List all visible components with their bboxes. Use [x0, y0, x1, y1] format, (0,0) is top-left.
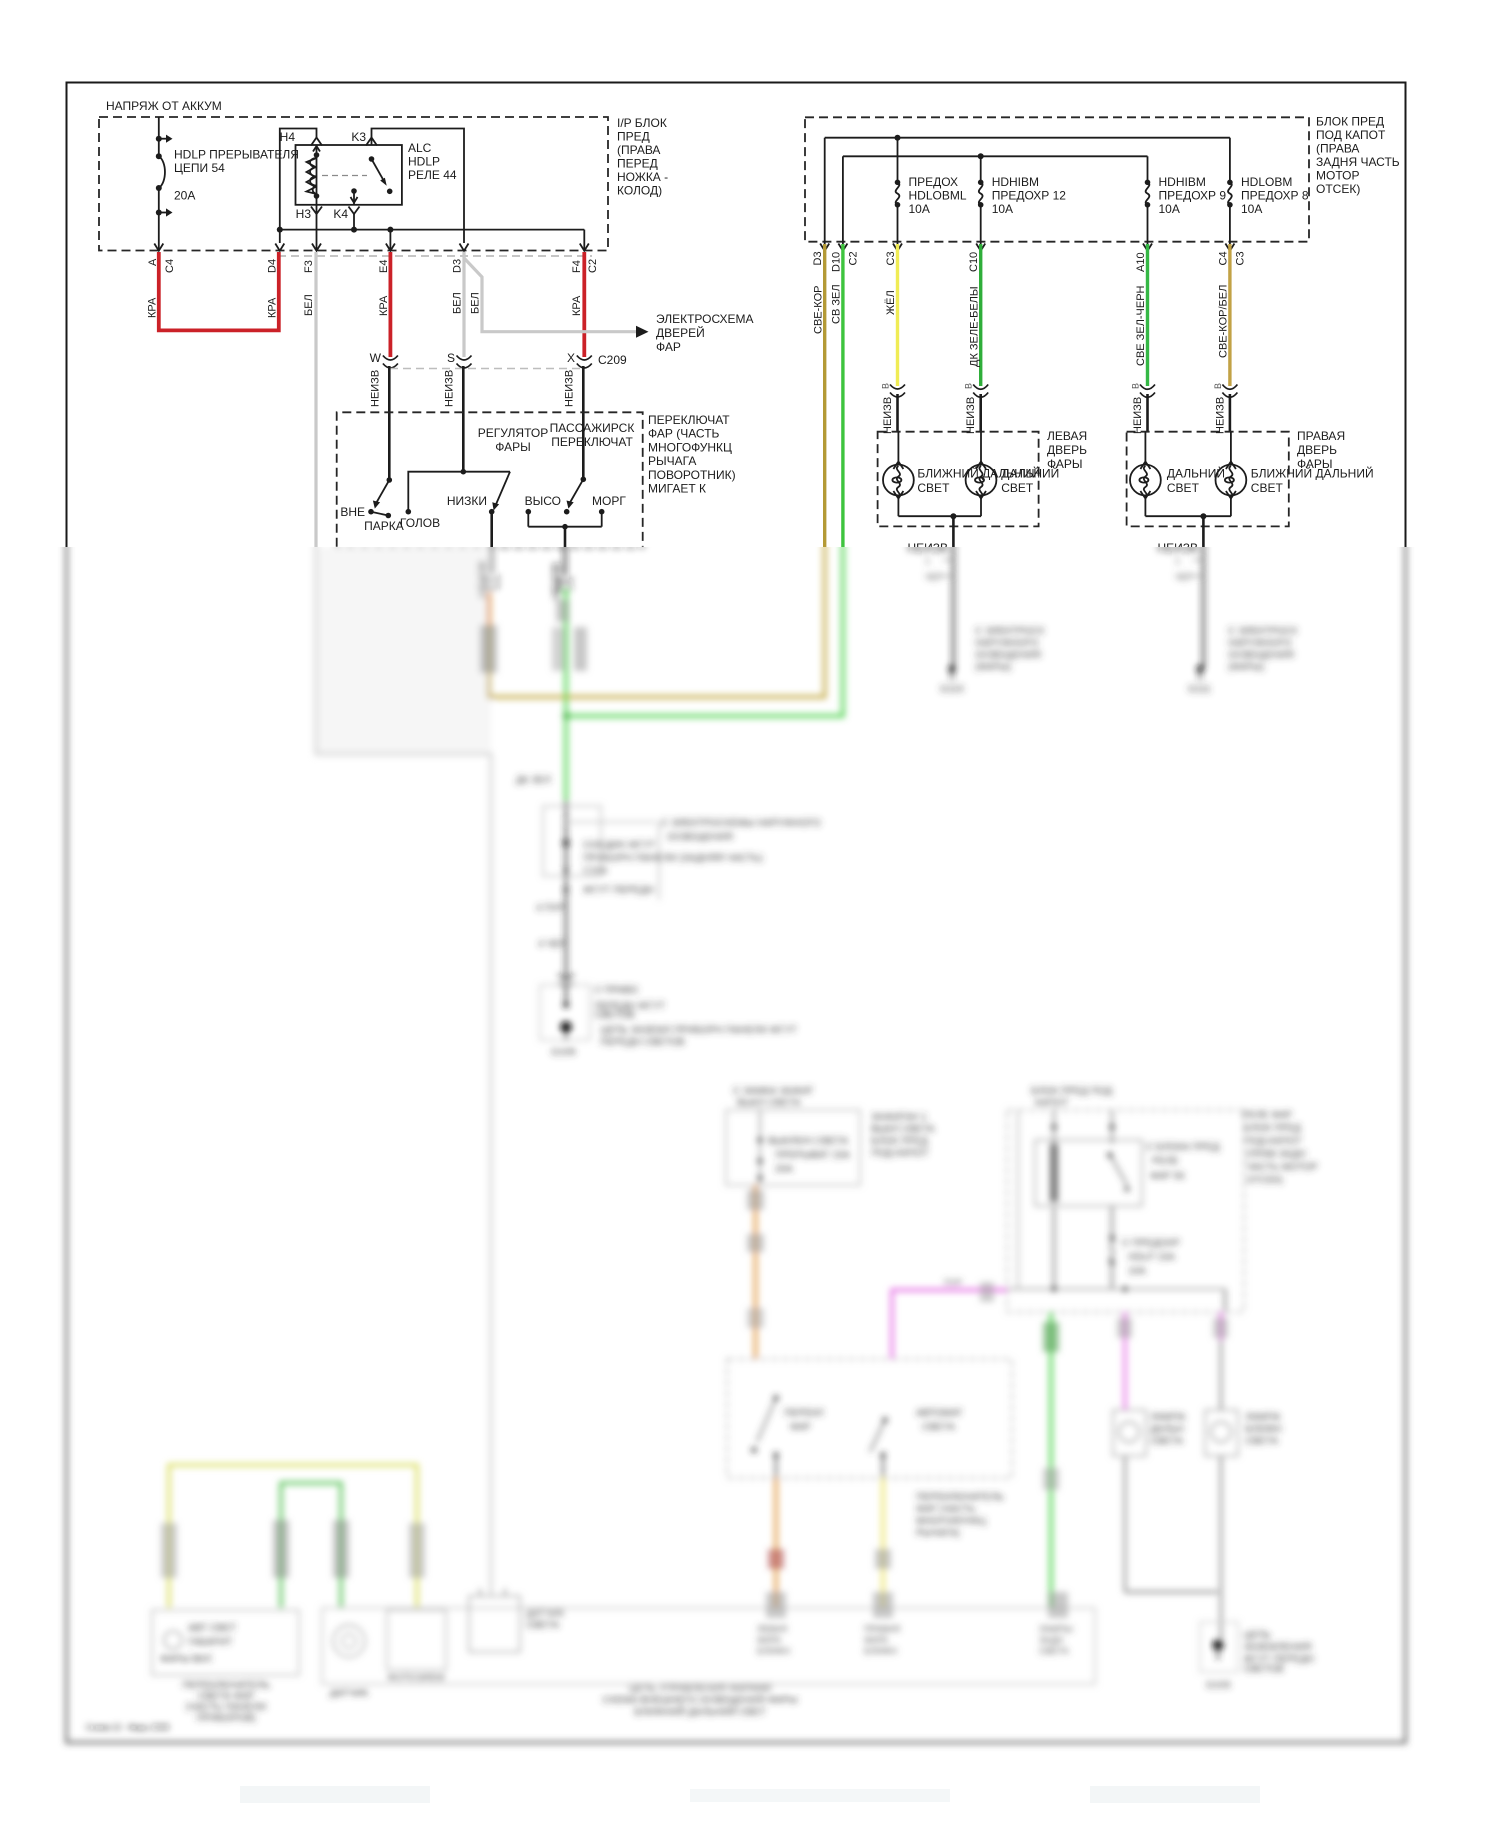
svg-text:ВЫСО: ВЫСО	[525, 494, 561, 508]
svg-text:БЕЛ: БЕЛ	[452, 292, 464, 314]
svg-text:АВТ СВЕТ: АВТ СВЕТ	[188, 1623, 236, 1634]
svg-text:ГОЛОВ: ГОЛОВ	[400, 516, 440, 530]
svg-text:НЕИЗВ: НЕИЗВ	[965, 397, 977, 434]
svg-text:СВЕТ: СВЕТ	[917, 481, 950, 495]
svg-text:РЕЛЕ 44: РЕЛЕ 44	[408, 168, 457, 182]
svg-text:ПРИБОРН ПАНЕЛИ (ЗАДНЯЯ ЧАСТЬ): ПРИБОРН ПАНЕЛИ (ЗАДНЯЯ ЧАСТЬ)	[583, 853, 763, 864]
svg-text:БЛИЖНИЙ ДАЛЬНИЙ СВЕТ: БЛИЖНИЙ ДАЛЬНИЙ СВЕТ	[634, 1705, 766, 1718]
svg-text:БЛИЖНИЙ ДАЛЬНИЙ: БЛИЖНИЙ ДАЛЬНИЙ	[1251, 466, 1374, 481]
svg-text:K3: K3	[351, 130, 366, 144]
svg-text:РЕЛЕ: РЕЛЕ	[1152, 1156, 1179, 1167]
svg-text:ВЫКЛ СВЕТА: ВЫКЛ СВЕТА	[737, 1098, 801, 1109]
svg-text:НАРУЖНОГО: НАРУЖНОГО	[975, 638, 1039, 649]
svg-text:БЕЛ: БЕЛ	[303, 294, 315, 316]
svg-text:ДАЛЬНИЙ: ДАЛЬНИЙ	[1001, 466, 1059, 481]
svg-text:(ФАРЫ): (ФАРЫ)	[1228, 662, 1264, 673]
svg-text:ПОД КАПОТ: ПОД КАПОТ	[1244, 1136, 1302, 1147]
svg-text:B: B	[1131, 383, 1141, 389]
svg-text:РЕЛЕ ФАР: РЕЛЕ ФАР	[1242, 1110, 1292, 1121]
svg-text:G111: G111	[1188, 684, 1211, 695]
svg-text:ПРЕД: ПРЕД	[617, 130, 650, 144]
svg-text:СВЕТОВ: СВЕТОВ	[1243, 1664, 1284, 1675]
svg-text:10А: 10А	[1128, 1266, 1146, 1277]
svg-text:КАПОТ: КАПОТ	[1035, 1098, 1068, 1109]
svg-text:ДК ЗЕЛЕ-БЕЛЫ: ДК ЗЕЛЕ-БЕЛЫ	[968, 286, 980, 367]
svg-text:РЕГУЛЯТОР: РЕГУЛЯТОР	[478, 426, 548, 440]
svg-text:ПРАВАЯ: ПРАВАЯ	[1297, 429, 1345, 443]
svg-text:20A: 20A	[174, 189, 195, 203]
svg-text:ПРИБОРОВ): ПРИБОРОВ)	[196, 1713, 256, 1724]
svg-text:СВЕТА: СВЕТА	[526, 1620, 559, 1631]
svg-text:D4: D4	[267, 259, 279, 273]
svg-text:ФАРЫ ВКЛ: ФАРЫ ВКЛ	[160, 1654, 211, 1665]
svg-text:БЛОК ПРЕД: БЛОК ПРЕД	[871, 1136, 928, 1147]
svg-text:ФАРА: ФАРА	[757, 1635, 781, 1645]
svg-text:ЧАСТЬ МОТОР: ЧАСТЬ МОТОР	[1246, 1162, 1318, 1173]
svg-text:ФАР: ФАР	[790, 1422, 811, 1433]
svg-text:C4: C4	[1217, 251, 1229, 265]
svg-text:Схема 12 - Фары 2008: Схема 12 - Фары 2008	[86, 1723, 170, 1732]
svg-text:K4: K4	[333, 207, 348, 221]
svg-text:СВЕТА: СВЕТА	[1150, 1436, 1183, 1447]
svg-text:СВЕТОВ: СВЕТОВ	[594, 1010, 635, 1021]
svg-text:D3: D3	[812, 251, 824, 265]
svg-text:СВЕТ: СВЕТ	[1251, 481, 1284, 495]
svg-text:G110: G110	[940, 684, 964, 695]
svg-text:МНОГОФУНКЦ: МНОГОФУНКЦ	[648, 440, 732, 454]
svg-text:РЫЧАГА: РЫЧАГА	[648, 454, 696, 468]
svg-text:МНОГОФУНКЦ: МНОГОФУНКЦ	[916, 1516, 987, 1527]
svg-text:HDHIBM: HDHIBM	[1159, 175, 1206, 189]
svg-text:ПЕРЕКЛЮЧАТЕЛЬ: ПЕРЕКЛЮЧАТЕЛЬ	[182, 1680, 270, 1691]
svg-text:ДВЕРЬ: ДВЕРЬ	[1047, 443, 1087, 457]
svg-text:ПЕРЕД: ПЕРЕД	[617, 157, 658, 171]
svg-text:ФАР 56: ФАР 56	[1150, 1171, 1185, 1182]
svg-text:БЛИЖН: БЛИЖН	[1245, 1424, 1282, 1435]
svg-text:ПРАВАЯ: ПРАВАЯ	[864, 1624, 900, 1634]
svg-text:F3: F3	[303, 260, 315, 273]
svg-text:ЦЕПЬ УПРАВЛЕНИЯ ФАРАМИ: ЦЕПЬ УПРАВЛЕНИЯ ФАРАМИ	[628, 1683, 771, 1694]
svg-text:20А: 20А	[775, 1164, 793, 1175]
svg-text:С ЭЛЕКТРОСХ: С ЭЛЕКТРОСХ	[975, 626, 1045, 637]
svg-text:ФАРА: ФАРА	[864, 1635, 888, 1645]
svg-text:I/P БЛОК: I/P БЛОК	[617, 116, 667, 130]
svg-text:ВЫКЛ СВЕТА: ВЫКЛ СВЕТА	[871, 1124, 935, 1135]
svg-text:ВНЕ: ВНЕ	[340, 505, 365, 519]
svg-text:ЭЛЕКТРОСХЕМА: ЭЛЕКТРОСХЕМА	[656, 312, 754, 326]
svg-text:ПЕРЕКЛЮЧАТЕЛЬ: ПЕРЕКЛЮЧАТЕЛЬ	[916, 1492, 1004, 1503]
svg-text:4 ЧЕР: 4 ЧЕР	[538, 939, 567, 950]
svg-text:СВЕТ: СВЕТ	[1001, 481, 1034, 495]
svg-text:(ПРАВА: (ПРАВА	[617, 143, 660, 157]
svg-text:10A: 10A	[1159, 202, 1180, 216]
svg-text:МОРГ: МОРГ	[592, 494, 626, 508]
svg-text:КРА: КРА	[571, 295, 583, 316]
svg-text:КРА: КРА	[267, 297, 279, 318]
svg-text:С209: С209	[583, 866, 607, 877]
svg-text:HDLOBM: HDLOBM	[1241, 175, 1292, 189]
svg-text:(ПРАВА: (ПРАВА	[1316, 142, 1359, 156]
svg-text:C10: C10	[968, 252, 980, 272]
svg-text:B: B	[881, 383, 891, 389]
svg-text:C209: C209	[598, 353, 627, 367]
svg-text:ЛАМПА: ЛАМПА	[1245, 1412, 1281, 1423]
svg-text:B: B	[1213, 383, 1223, 389]
svg-text:ПАССАЖИРСК: ПАССАЖИРСК	[550, 421, 635, 435]
svg-text:КОЛОД): КОЛОД)	[617, 184, 662, 198]
svg-text:ФАР (ЧАСТЬ: ФАР (ЧАСТЬ	[648, 427, 720, 441]
svg-text:H3: H3	[296, 207, 312, 221]
svg-text:ЧЕР: ЧЕР	[925, 572, 943, 582]
svg-text:НАПРЯЖ ОТ АККУМ: НАПРЯЖ ОТ АККУМ	[106, 99, 222, 113]
svg-text:НОЖКА -: НОЖКА -	[617, 170, 668, 184]
svg-text:ЦЕПИ 54: ЦЕПИ 54	[174, 161, 225, 175]
svg-text:КРА: КРА	[378, 295, 390, 316]
svg-text:ФАРЫ: ФАРЫ	[495, 440, 531, 454]
svg-text:F4: F4	[571, 260, 583, 273]
svg-text:МИГАЕТ К: МИГАЕТ К	[648, 482, 706, 496]
svg-text:H4: H4	[280, 130, 296, 144]
svg-text:(ФАРЫ): (ФАРЫ)	[975, 662, 1011, 673]
svg-text:С ПРЕДОХР: С ПРЕДОХР	[1122, 1238, 1180, 1249]
svg-text:10A: 10A	[992, 202, 1013, 216]
svg-text:E4: E4	[378, 260, 390, 273]
svg-text:ПОД КАПОТ: ПОД КАПОТ	[1316, 128, 1386, 142]
svg-text:ОТСЕК): ОТСЕК)	[1316, 182, 1360, 196]
svg-text:НЕИЗВ: НЕИЗВ	[564, 370, 576, 407]
svg-text:ЗАЗЕМЛЕНИЯ: ЗАЗЕМЛЕНИЯ	[1243, 1642, 1312, 1653]
svg-text:C3: C3	[885, 251, 897, 265]
svg-text:ПЕРЕКЛЮЧАТ: ПЕРЕКЛЮЧАТ	[551, 435, 633, 449]
svg-text:ЛАМПЫ: ЛАМПЫ	[1039, 1624, 1073, 1634]
svg-text:ПЕРЕКЛЮЧАТ: ПЕРЕКЛЮЧАТ	[648, 413, 730, 427]
svg-text:БЕЛ: БЕЛ	[470, 292, 482, 314]
svg-text:НЕИЗВ: НЕИЗВ	[1214, 397, 1226, 434]
svg-text:СВЕТА: СВЕТА	[1039, 1646, 1069, 1656]
svg-text:БЛИЖН: БЛИЖН	[864, 1646, 897, 1656]
svg-text:G109: G109	[551, 1047, 576, 1058]
svg-text:ЛЕВАЯ: ЛЕВАЯ	[1047, 429, 1087, 443]
svg-text:ПРЕДОХР 9: ПРЕДОХР 9	[1159, 189, 1227, 203]
svg-text:ALC: ALC	[408, 141, 432, 155]
svg-text:ЛАМПА: ЛАМПА	[1150, 1412, 1186, 1423]
svg-text:ФАР (ЧАСТЬ: ФАР (ЧАСТЬ	[916, 1504, 976, 1515]
svg-text:10A: 10A	[909, 202, 930, 216]
svg-text:МОТОР: МОТОР	[1316, 169, 1359, 183]
svg-text:ЦЕПЬ: ЦЕПЬ	[1243, 1630, 1271, 1641]
svg-text:ПРЕДОХР 12: ПРЕДОХР 12	[992, 189, 1067, 203]
svg-text:С ЭЛЕКТРОСХ: С ЭЛЕКТРОСХ	[1228, 626, 1298, 637]
svg-text:G103: G103	[1206, 1680, 1231, 1691]
svg-text:A10: A10	[1135, 252, 1147, 272]
svg-text:D10: D10	[831, 252, 843, 272]
svg-text:ПРЕДОХР 8: ПРЕДОХР 8	[1241, 189, 1309, 203]
svg-text:ПАРКА: ПАРКА	[364, 519, 404, 533]
svg-text:ОСВЕЩЕНИЯ: ОСВЕЩЕНИЯ	[667, 832, 733, 843]
svg-text:D3: D3	[452, 259, 464, 273]
svg-text:СВЕ-КОР/БЕЛ: СВЕ-КОР/БЕЛ	[1218, 285, 1230, 358]
svg-text:КРА: КРА	[147, 297, 159, 318]
svg-text:ДАТЧИК: ДАТЧИК	[330, 1688, 369, 1699]
svg-text:ЖГУТ ПЕРЕДН: ЖГУТ ПЕРЕДН	[583, 885, 654, 896]
svg-text:ПОВОРОТНИК): ПОВОРОТНИК)	[648, 468, 736, 482]
svg-text:СВЕТА ФАР: СВЕТА ФАР	[198, 1691, 255, 1702]
svg-text:АВТОМАТ: АВТОМАТ	[916, 1408, 962, 1419]
svg-text:ФАР: ФАР	[656, 340, 681, 354]
svg-text:HDLP 15А: HDLP 15А	[1128, 1252, 1175, 1263]
svg-text:ДАЛЬН: ДАЛЬН	[1150, 1424, 1184, 1435]
svg-text:ПУР: ПУР	[944, 1278, 962, 1288]
svg-text:ПЕРЕДН СВЕТОВ: ПЕРЕДН СВЕТОВ	[600, 1037, 685, 1048]
svg-text:ДАТЧИК: ДАТЧИК	[526, 1608, 565, 1619]
svg-text:ОТСЕК): ОТСЕК)	[1246, 1175, 1283, 1186]
svg-text:БЛОК ПРЕД: БЛОК ПРЕД	[1244, 1123, 1301, 1134]
svg-text:ЗАДНЯ ЧАСТЬ: ЗАДНЯ ЧАСТЬ	[1316, 155, 1400, 169]
svg-text:HDLOBML: HDLOBML	[909, 189, 967, 203]
svg-text:ФОТОЭЛЕМ: ФОТОЭЛЕМ	[387, 1673, 444, 1684]
svg-text:НИЗКИ: НИЗКИ	[447, 494, 487, 508]
svg-text:4 ПУР: 4 ПУР	[536, 903, 565, 914]
svg-text:C3: C3	[1235, 251, 1247, 265]
svg-text:ЗАДН: ЗАДН	[1039, 1635, 1063, 1645]
svg-text:СВЕ-КОР: СВЕ-КОР	[812, 286, 824, 334]
svg-text:HDHIBM: HDHIBM	[992, 175, 1039, 189]
svg-text:1: 1	[1175, 556, 1180, 566]
svg-text:C2: C2	[587, 259, 599, 273]
svg-text:СХЕМА ВНЕШНЕГО ОСВЕЩЕНИЯ ФАРЫ: СХЕМА ВНЕШНЕГО ОСВЕЩЕНИЯ ФАРЫ	[602, 1695, 797, 1706]
svg-text:W: W	[370, 351, 382, 365]
svg-text:ГАБАРИТ: ГАБАРИТ	[188, 1637, 232, 1648]
svg-text:РЫЧАГА): РЫЧАГА)	[916, 1528, 960, 1539]
svg-text:(ПРАВ ЗАДН: (ПРАВ ЗАДН	[1246, 1149, 1306, 1160]
svg-text:10A: 10A	[1241, 202, 1262, 216]
svg-text:СВЕТА: СВЕТА	[922, 1422, 955, 1433]
svg-text:ПЕРЕКЛ: ПЕРЕКЛ	[784, 1408, 824, 1419]
svg-text:X: X	[567, 351, 575, 365]
svg-text:СВ ЗЕЛ: СВ ЗЕЛ	[831, 284, 843, 324]
svg-text:ОСВЕЩЕНИЯ: ОСВЕЩЕНИЯ	[1228, 650, 1294, 661]
svg-text:НЕИЗВ: НЕИЗВ	[370, 370, 382, 407]
svg-text:ДВЕРЬ: ДВЕРЬ	[1297, 443, 1337, 457]
svg-text:СВЕТА: СВЕТА	[1245, 1436, 1278, 1447]
svg-text:ОСВЕЩЕНИЯ: ОСВЕЩЕНИЯ	[975, 650, 1041, 661]
svg-text:B: B	[964, 383, 974, 389]
svg-text:НЕИЗВ: НЕИЗВ	[1132, 397, 1144, 434]
svg-text:ЧЕР: ЧЕР	[1175, 572, 1193, 582]
svg-text:НАРУЖНОГО: НАРУЖНОГО	[1228, 638, 1292, 649]
svg-text:ЛЕВАЯ: ЛЕВАЯ	[757, 1624, 787, 1634]
svg-text:СОЕДИН ЖГУТ: СОЕДИН ЖГУТ	[583, 840, 656, 851]
svg-text:ПОД КАПОТ: ПОД КАПОТ	[871, 1148, 929, 1159]
svg-text:ВЫКЛЮЧ СВЕТА: ВЫКЛЮЧ СВЕТА	[768, 1136, 848, 1147]
svg-text:ПРЕРЫВАТ 15А: ПРЕРЫВАТ 15А	[775, 1150, 850, 1161]
svg-text:1: 1	[925, 556, 930, 566]
svg-text:БЛОК ПРЕД ПОД: БЛОК ПРЕД ПОД	[1031, 1086, 1112, 1097]
svg-text:С БЛОКА ПРЕД: С БЛОКА ПРЕД	[1146, 1142, 1220, 1153]
svg-text:ПРЕДОХ: ПРЕДОХ	[909, 175, 959, 189]
svg-text:НЕИЗВ: НЕИЗВ	[444, 370, 456, 407]
svg-text:С ЗАМКА ЗАЖИГ: С ЗАМКА ЗАЖИГ	[733, 1086, 814, 1097]
svg-text:БЛИЖН: БЛИЖН	[757, 1646, 790, 1656]
svg-text:ДВЕРЕЙ: ДВЕРЕЙ	[656, 325, 705, 340]
svg-text:ДК ЗЕЛ: ДК ЗЕЛ	[516, 775, 551, 786]
svg-text:ЦЕПЬ ЗАЗЕМЛ ПРИБОРН ПАНЕЛИ ЖГУ: ЦЕПЬ ЗАЗЕМЛ ПРИБОРН ПАНЕЛИ ЖГУТ	[600, 1025, 797, 1036]
svg-text:СВЕТ: СВЕТ	[1167, 481, 1200, 495]
svg-text:C4: C4	[164, 259, 176, 273]
svg-text:НЕИЗВ: НЕИЗВ	[882, 397, 894, 434]
svg-text:ЗАЖИГАН 1: ЗАЖИГАН 1	[871, 1112, 928, 1123]
svg-text:С ПРАВО: С ПРАВО	[594, 985, 638, 996]
svg-text:С ЭЛЕКТРОСХЕМЫ НАРУЖНОГО: С ЭЛЕКТРОСХЕМЫ НАРУЖНОГО	[661, 818, 821, 829]
svg-text:(ЧАСТЬ ПАНЕЛИ: (ЧАСТЬ ПАНЕЛИ	[186, 1702, 266, 1713]
svg-text:S: S	[447, 351, 455, 365]
svg-text:ДАЛЬНИЙ: ДАЛЬНИЙ	[1167, 466, 1225, 481]
svg-text:СВЕ ЗЕЛ-ЧЕРН: СВЕ ЗЕЛ-ЧЕРН	[1135, 285, 1147, 366]
svg-text:C2: C2	[848, 251, 860, 265]
svg-text:HDLP: HDLP	[408, 155, 440, 169]
svg-text:БЛОК ПРЕД: БЛОК ПРЕД	[1316, 115, 1384, 129]
svg-text:ЖЁЛ: ЖЁЛ	[885, 290, 897, 315]
